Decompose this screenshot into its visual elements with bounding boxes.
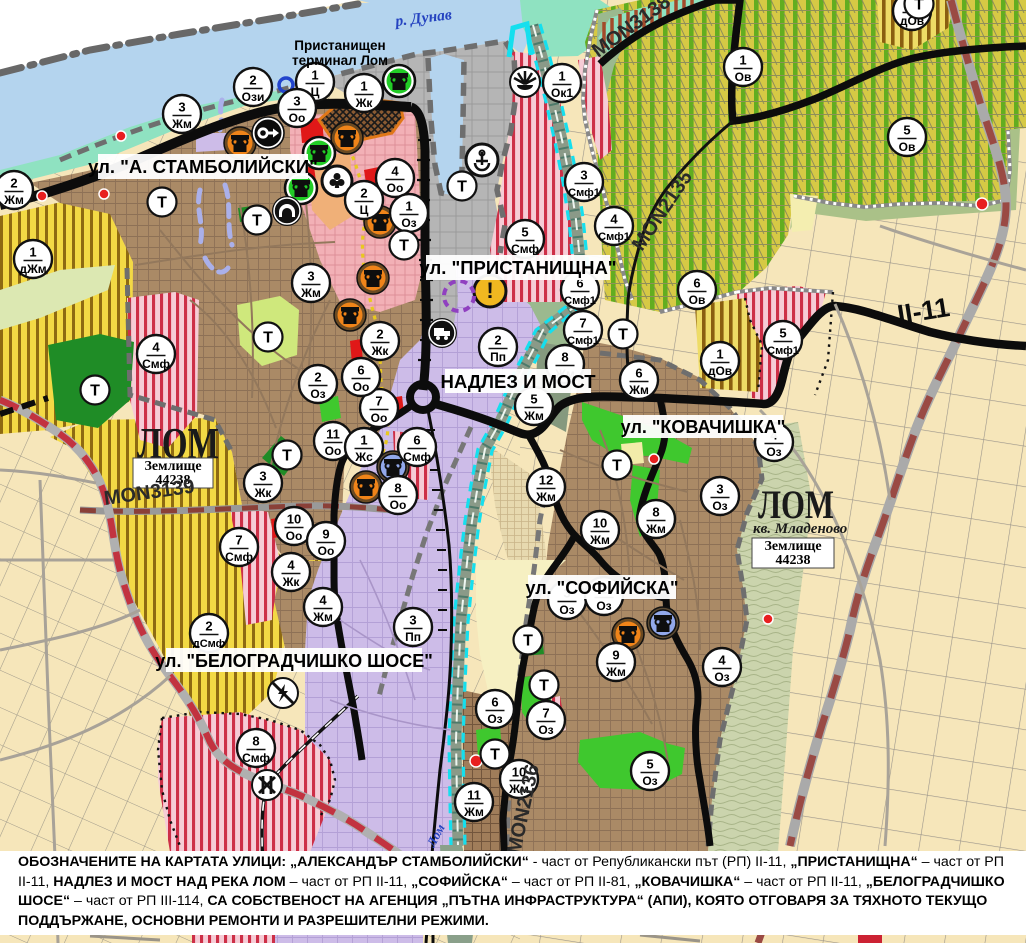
svg-text:Оо: Оо [371, 411, 388, 425]
svg-text:2: 2 [314, 370, 321, 385]
svg-text:дЖм: дЖм [19, 262, 46, 276]
svg-text:!: ! [486, 278, 493, 303]
svg-text:Жм: Жм [645, 522, 666, 536]
svg-text:8: 8 [394, 481, 401, 496]
svg-text:Оз: Оз [766, 445, 781, 459]
svg-text:Смф: Смф [242, 751, 270, 765]
svg-text:Жм: Жм [605, 665, 626, 679]
svg-text:2: 2 [494, 333, 501, 348]
svg-text:11: 11 [326, 427, 340, 442]
svg-text:2: 2 [10, 176, 17, 191]
svg-text:Оо: Оо [387, 181, 404, 195]
svg-text:9: 9 [322, 527, 329, 542]
svg-text:44238: 44238 [776, 553, 811, 568]
svg-text:Оз: Оз [310, 387, 325, 401]
svg-text:Оо: Оо [318, 544, 335, 558]
svg-text:Т: Т [157, 195, 167, 212]
svg-text:Оо: Оо [286, 529, 303, 543]
svg-text:2: 2 [249, 73, 256, 88]
svg-text:Смф: Смф [403, 450, 431, 464]
svg-text:1: 1 [405, 199, 412, 214]
svg-text:Жм: Жм [463, 805, 484, 819]
svg-text:Смф1: Смф1 [568, 187, 600, 199]
svg-text:Смф1: Смф1 [598, 231, 630, 243]
svg-text:Оо: Оо [289, 111, 306, 125]
svg-text:Т: Т [282, 448, 292, 465]
svg-text:Оз: Оз [642, 774, 657, 788]
svg-text:ул. "А. СТАМБОЛИЙСКИ": ул. "А. СТАМБОЛИЙСКИ" [88, 156, 318, 177]
svg-text:Жк: Жк [254, 486, 273, 500]
svg-text:Оо: Оо [325, 444, 342, 458]
svg-text:Ов: Ов [899, 140, 916, 154]
svg-text:Жк: Жк [371, 344, 390, 358]
svg-text:Смф: Смф [225, 550, 253, 564]
svg-text:3: 3 [409, 613, 416, 628]
svg-text:Ози: Ози [242, 90, 265, 104]
svg-text:2: 2 [205, 619, 212, 634]
svg-text:Ц: Ц [360, 203, 369, 217]
svg-text:1: 1 [739, 53, 746, 68]
svg-text:Т: Т [252, 213, 262, 230]
svg-text:1: 1 [360, 79, 367, 94]
svg-text:12: 12 [539, 473, 553, 488]
svg-text:5: 5 [646, 757, 653, 772]
svg-text:7: 7 [579, 316, 586, 331]
svg-text:4: 4 [319, 593, 327, 608]
svg-text:3: 3 [716, 482, 723, 497]
svg-text:Ов: Ов [689, 293, 706, 307]
svg-text:7: 7 [235, 533, 242, 548]
svg-text:ул. "КОВАЧИШКА": ул. "КОВАЧИШКА" [621, 417, 786, 437]
svg-text:Пп: Пп [490, 350, 506, 364]
svg-text:дОв: дОв [708, 364, 732, 378]
svg-text:1: 1 [558, 69, 565, 84]
svg-text:ул. "БЕЛОГРАДЧИШКО ШОСЕ": ул. "БЕЛОГРАДЧИШКО ШОСЕ" [155, 651, 433, 671]
svg-text:Жм: Жм [312, 610, 333, 624]
svg-text:3: 3 [293, 94, 300, 109]
svg-text:Т: Т [263, 330, 273, 347]
svg-text:Т: Т [457, 179, 467, 196]
svg-text:Жм: Жм [535, 490, 556, 504]
svg-text:Оз: Оз [712, 499, 727, 513]
svg-text:7: 7 [375, 394, 382, 409]
svg-text:6: 6 [491, 695, 498, 710]
svg-text:Т: Т [490, 747, 500, 764]
svg-text:1: 1 [716, 347, 723, 362]
svg-text:3: 3 [259, 469, 266, 484]
svg-text:Т: Т [399, 238, 409, 255]
svg-text:Смф: Смф [511, 242, 539, 256]
svg-text:Жм: Жм [171, 117, 192, 131]
svg-text:8: 8 [252, 734, 259, 749]
svg-text:Оо: Оо [353, 380, 370, 394]
svg-text:2: 2 [360, 186, 367, 201]
svg-text:Землище: Землище [764, 539, 821, 554]
svg-text:3: 3 [307, 269, 314, 284]
svg-text:10: 10 [593, 516, 607, 531]
svg-text:Смф: Смф [142, 357, 170, 371]
svg-text:Оо: Оо [390, 498, 407, 512]
svg-text:Жс: Жс [354, 450, 373, 464]
svg-text:Жм: Жм [3, 193, 24, 207]
svg-text:4: 4 [391, 164, 399, 179]
svg-text:Смф1: Смф1 [564, 295, 596, 307]
svg-text:Оз: Оз [538, 723, 553, 737]
svg-text:Пп: Пп [405, 630, 421, 644]
svg-text:3: 3 [580, 168, 587, 183]
svg-text:Ов: Ов [735, 70, 752, 84]
svg-text:Пристанищен: Пристанищен [294, 38, 385, 53]
svg-text:1: 1 [29, 245, 36, 260]
svg-text:терминал Лом: терминал Лом [292, 53, 388, 68]
svg-text:4: 4 [718, 653, 726, 668]
svg-text:Оз: Оз [596, 599, 611, 613]
svg-text:5: 5 [521, 225, 528, 240]
svg-text:Оз: Оз [487, 712, 502, 726]
svg-text:Землище: Землище [144, 459, 201, 474]
svg-text:2: 2 [376, 327, 383, 342]
svg-text:Оз: Оз [714, 670, 729, 684]
svg-text:9: 9 [612, 648, 619, 663]
svg-text:Оз: Оз [401, 216, 416, 230]
svg-text:11: 11 [467, 788, 481, 803]
svg-text:Т: Т [612, 458, 622, 475]
svg-text:8: 8 [561, 350, 568, 365]
svg-text:7: 7 [542, 706, 549, 721]
svg-text:НАДЛЕЗ И МОСТ: НАДЛЕЗ И МОСТ [440, 371, 596, 392]
svg-text:1: 1 [311, 68, 318, 83]
svg-text:Т: Т [618, 327, 628, 344]
svg-text:5: 5 [903, 123, 910, 138]
svg-text:Смф1: Смф1 [767, 345, 799, 357]
svg-text:10: 10 [287, 512, 301, 527]
svg-text:Т: Т [914, 0, 924, 14]
svg-text:6: 6 [413, 433, 420, 448]
svg-text:Т: Т [539, 678, 549, 695]
svg-text:3: 3 [178, 100, 185, 115]
svg-text:6: 6 [693, 276, 700, 291]
svg-text:кв. Младеново: кв. Младеново [753, 521, 847, 537]
svg-text:8: 8 [652, 505, 659, 520]
svg-text:Жк: Жк [355, 96, 374, 110]
svg-text:6: 6 [635, 366, 642, 381]
svg-text:4: 4 [610, 212, 618, 227]
svg-text:6: 6 [357, 363, 364, 378]
svg-text:4: 4 [152, 340, 160, 355]
svg-text:Жм: Жм [300, 286, 321, 300]
svg-text:ул. "ПРИСТАНИЩНА": ул. "ПРИСТАНИЩНА" [419, 257, 616, 278]
svg-text:5: 5 [779, 326, 786, 341]
svg-text:Т: Т [90, 383, 100, 400]
svg-text:Оз: Оз [559, 603, 574, 617]
svg-text:4: 4 [287, 558, 295, 573]
svg-text:ул. "СОФИЙСКА": ул. "СОФИЙСКА" [525, 577, 678, 598]
svg-text:Жм: Жм [628, 383, 649, 397]
svg-text:5: 5 [530, 392, 537, 407]
svg-text:Жк: Жк [282, 575, 301, 589]
svg-text:Т: Т [523, 633, 533, 650]
svg-text:Жм: Жм [589, 533, 610, 547]
svg-text:1: 1 [360, 433, 367, 448]
svg-text:Жм: Жм [523, 409, 544, 423]
svg-text:Ок1: Ок1 [551, 86, 573, 100]
